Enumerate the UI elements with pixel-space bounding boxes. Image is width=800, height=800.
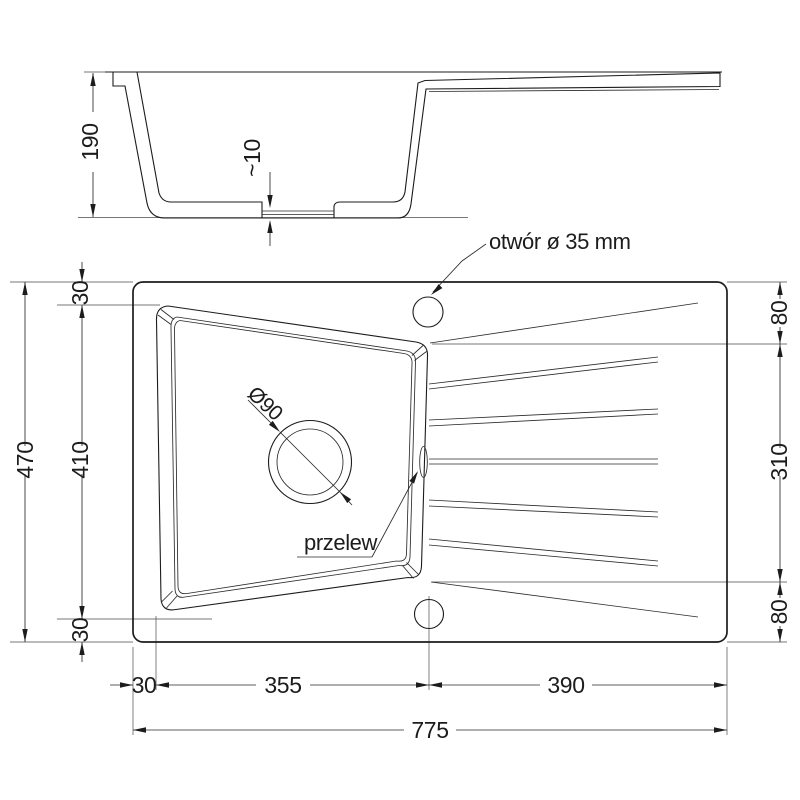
dim-drain-diameter: Ø90 [243, 382, 287, 425]
dim-section-depth: 190 [77, 123, 103, 160]
dim-drainer-height: 310 [766, 443, 792, 480]
dim-right-top: 80 [766, 301, 792, 326]
tap-hole-label: otwór ø 35 mm [489, 229, 631, 254]
dim-left-chain: 470 30 410 30 [12, 262, 93, 662]
dim-section-depth-group: 190 [77, 73, 103, 217]
bowl-outline [156, 306, 427, 610]
dim-bottom-margin: 30 [67, 618, 93, 643]
overflow-label-group: przelew [297, 470, 420, 557]
dim-drain-diameter-group: Ø90 [243, 382, 352, 505]
sink-technical-drawing: 190 ~10 [0, 0, 800, 800]
dim-total-width: 775 [411, 717, 448, 743]
sink-technical-drawing-page: 190 ~10 [0, 0, 800, 800]
plan-view: Ø90 przelew otwór ø 35 mm 470 30 [10, 229, 792, 743]
dim-bottom-chain: 30 355 390 775 [110, 672, 727, 743]
dim-drainer-width: 390 [547, 672, 584, 698]
overflow-slot [420, 447, 428, 478]
dim-right-bottom: 80 [766, 600, 792, 625]
tap-hole-label-group: otwór ø 35 mm [429, 229, 630, 297]
dim-right-chain: 80 310 80 [766, 282, 792, 642]
drainboard-underside-line [429, 90, 719, 92]
dim-bowl-height: 410 [67, 441, 93, 478]
section-right-wall-drainboard [334, 73, 720, 218]
drainboard-bottom-edge [431, 582, 698, 617]
tap-hole [413, 297, 443, 327]
cross-section-view: 190 ~10 [77, 72, 722, 246]
dim-floor-thickness: ~10 [239, 139, 265, 177]
dim-floor-thickness-group: ~10 [239, 139, 273, 246]
dim-top-margin: 30 [67, 281, 93, 306]
drainer-grooves [429, 357, 658, 566]
section-floor-recess [262, 211, 334, 218]
dim-bowl-width: 355 [264, 672, 301, 698]
dim-total-height: 470 [12, 441, 38, 478]
overflow-label: przelew [304, 530, 378, 555]
drainboard-top-edge [430, 303, 698, 343]
bowl-corner-bevels [158, 310, 427, 609]
dim-left-offset: 30 [132, 672, 157, 698]
